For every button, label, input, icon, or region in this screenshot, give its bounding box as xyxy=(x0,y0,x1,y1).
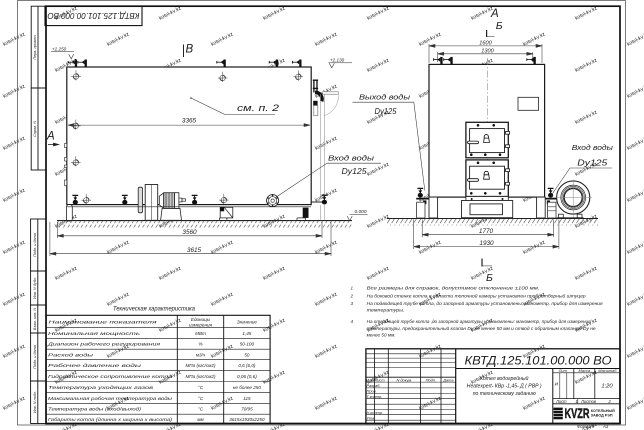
svg-text:1,45: 1,45 xyxy=(242,331,251,336)
svg-text:Dy125: Dy125 xyxy=(375,107,398,116)
svg-text:А: А xyxy=(490,8,499,20)
svg-text:Лит.: Лит. xyxy=(558,368,568,373)
svg-text:Перв. примен.: Перв. примен. xyxy=(33,34,37,59)
svg-text:0,6 (6,0): 0,6 (6,0) xyxy=(238,363,256,368)
svg-text:°С: °С xyxy=(198,385,204,390)
svg-text:МПа (кгс/см2): МПа (кгс/см2) xyxy=(185,374,215,379)
svg-text:Пров.: Пров. xyxy=(367,389,377,394)
svg-text:Изм.Лист: Изм.Лист xyxy=(366,377,385,382)
svg-text:Справ. N: Справ. N xyxy=(33,121,37,137)
svg-text:м3/ч: м3/ч xyxy=(196,352,206,357)
svg-text:Температура воды (вход/выход): Температура воды (вход/выход) xyxy=(48,407,142,412)
svg-text:измерения: измерения xyxy=(189,322,213,327)
svg-text:1: 1 xyxy=(576,399,578,404)
svg-text:KVZR: KVZR xyxy=(565,406,590,421)
svg-text:Утв.: Утв. xyxy=(367,415,376,420)
svg-text:Масса: Масса xyxy=(579,368,591,373)
svg-text:°С: °С xyxy=(198,396,204,401)
svg-text:Разраб.: Разраб. xyxy=(367,383,381,388)
svg-text:1:20: 1:20 xyxy=(601,383,613,389)
svg-text:70/95: 70/95 xyxy=(241,407,253,412)
svg-text:Формат: Формат xyxy=(577,424,594,429)
svg-text:Техническая характеристика: Техническая характеристика xyxy=(113,307,196,313)
svg-text:Б: Б xyxy=(496,20,503,32)
svg-text:3615: 3615 xyxy=(187,247,202,254)
svg-text:температуры.: температуры. xyxy=(367,308,405,313)
svg-text:2: 2 xyxy=(350,293,354,298)
svg-text:И: И xyxy=(555,382,559,388)
svg-text:Подп.: Подп. xyxy=(426,377,436,382)
svg-text:Лист: Лист xyxy=(555,399,567,404)
svg-text:Вход воды: Вход воды xyxy=(572,143,613,152)
svg-text:Масштаб: Масштаб xyxy=(598,368,617,373)
svg-text:%: % xyxy=(198,342,202,347)
svg-text:Все размеры для справок, допус: Все размеры для справок, допустимое откл… xyxy=(367,286,540,291)
svg-text:Выход воды: Выход воды xyxy=(359,92,410,101)
svg-text:1770: 1770 xyxy=(479,228,494,235)
svg-text:Н.контр.: Н.контр. xyxy=(367,410,383,415)
svg-text:Диапазон рабочего регулировани: Диапазон рабочего регулирования xyxy=(47,342,161,347)
svg-text:Максимальная рабочая температу: Максимальная рабочая температура воды xyxy=(48,396,173,401)
svg-text:мм: мм xyxy=(197,417,204,422)
svg-text:Расход воды: Расход воды xyxy=(48,352,94,357)
svg-text:50-100: 50-100 xyxy=(240,342,255,347)
svg-text:0,06 (0,6): 0,06 (0,6) xyxy=(237,374,257,379)
svg-text:Котел водогрейный: Котел водогрейный xyxy=(480,375,529,382)
svg-text:МПа (кгс/см2): МПа (кгс/см2) xyxy=(185,363,215,368)
svg-text:КВТД.125.101.00.000 ВО: КВТД.125.101.00.000 ВО xyxy=(47,11,139,21)
svg-text:Вход воды: Вход воды xyxy=(328,154,374,163)
svg-text:3615х1930х2250: 3615х1930х2250 xyxy=(229,417,265,422)
svg-text:1930: 1930 xyxy=(479,240,494,247)
svg-text:не более 250: не более 250 xyxy=(233,385,261,390)
svg-text:50: 50 xyxy=(244,352,250,357)
svg-text:Взам. инв. N: Взам. инв. N xyxy=(33,308,37,330)
svg-text:КВТД.125.101.00.000 ВО: КВТД.125.101.00.000 ВО xyxy=(465,353,612,367)
svg-text:3560: 3560 xyxy=(182,229,197,236)
svg-text:Листов: Листов xyxy=(580,399,597,404)
svg-text:Дата: Дата xyxy=(442,377,454,382)
svg-text:Подп. и дата: Подп. и дата xyxy=(33,233,37,257)
svg-text:Инв. N подл.: Инв. N подл. xyxy=(33,391,37,413)
svg-text:°С: °С xyxy=(198,407,204,412)
svg-text:А3: А3 xyxy=(602,424,609,429)
svg-text:1300: 1300 xyxy=(481,48,494,54)
svg-text:Рабочее давление воды: Рабочее давление воды xyxy=(48,363,142,368)
svg-text:менее 50 мм.: менее 50 мм. xyxy=(367,333,396,338)
svg-text:Номинальная мощность: Номинальная мощность xyxy=(48,331,141,336)
svg-text:Подп. и дата: Подп. и дата xyxy=(33,345,37,369)
svg-text:А: А xyxy=(46,131,55,143)
svg-text:В: В xyxy=(186,44,194,56)
svg-text:КОТЕЛЬНЫЙ: КОТЕЛЬНЫЙ xyxy=(591,409,615,413)
svg-text:ЗАВОД РЭП: ЗАВОД РЭП xyxy=(591,414,613,418)
svg-text:Инв. N дубл.: Инв. N дубл. xyxy=(33,277,37,299)
svg-text:+2.250: +2.250 xyxy=(52,46,67,51)
svg-text:Габариты котла (длинна х ширин: Габариты котла (длинна х ширина х высота… xyxy=(48,417,173,422)
svg-text:На подводящей трубе котла, д: На подводящей трубе котла, до запорной а… xyxy=(367,300,604,306)
svg-text:Гидравлическое сопротивление к: Гидравлическое сопротивление котла xyxy=(48,374,173,379)
svg-text:Наименование показателя: Наименование показателя xyxy=(49,320,158,325)
svg-text:МВт: МВт xyxy=(195,331,206,336)
svg-text:Dy125: Dy125 xyxy=(577,159,608,168)
svg-text:1600: 1600 xyxy=(479,40,492,46)
svg-text:На отводящей трубе котла ,до з: На отводящей трубе котла ,до запорной ар… xyxy=(367,318,592,324)
svg-text:см. п. 2: см. п. 2 xyxy=(237,103,280,114)
svg-text:Dy125: Dy125 xyxy=(342,167,368,176)
svg-text:Т.контр.: Т.контр. xyxy=(367,394,383,399)
svg-text:Heatexpert- КВр -1,45- Д ( РВР: Heatexpert- КВр -1,45- Д ( РВР ) xyxy=(467,383,542,389)
svg-text:115: 115 xyxy=(243,396,251,401)
svg-text:+2.130: +2.130 xyxy=(330,58,345,63)
svg-text:3365: 3365 xyxy=(182,118,197,125)
svg-text:На боковой стенке котла в обла: На боковой стенке котла в области топочн… xyxy=(367,292,587,298)
svg-text:Температура уходящих газов: Температура уходящих газов xyxy=(48,385,154,390)
svg-text:N докум.: N докум. xyxy=(397,377,413,382)
svg-text:Б: Б xyxy=(486,272,493,284)
svg-text:по техническому заданию: по техническому заданию xyxy=(473,391,536,397)
svg-text:Единицы: Единицы xyxy=(191,317,211,322)
svg-text:Значение: Значение xyxy=(237,320,258,325)
svg-text:температуры, предохранительный: температуры, предохранительный клапан Dу… xyxy=(367,325,597,331)
